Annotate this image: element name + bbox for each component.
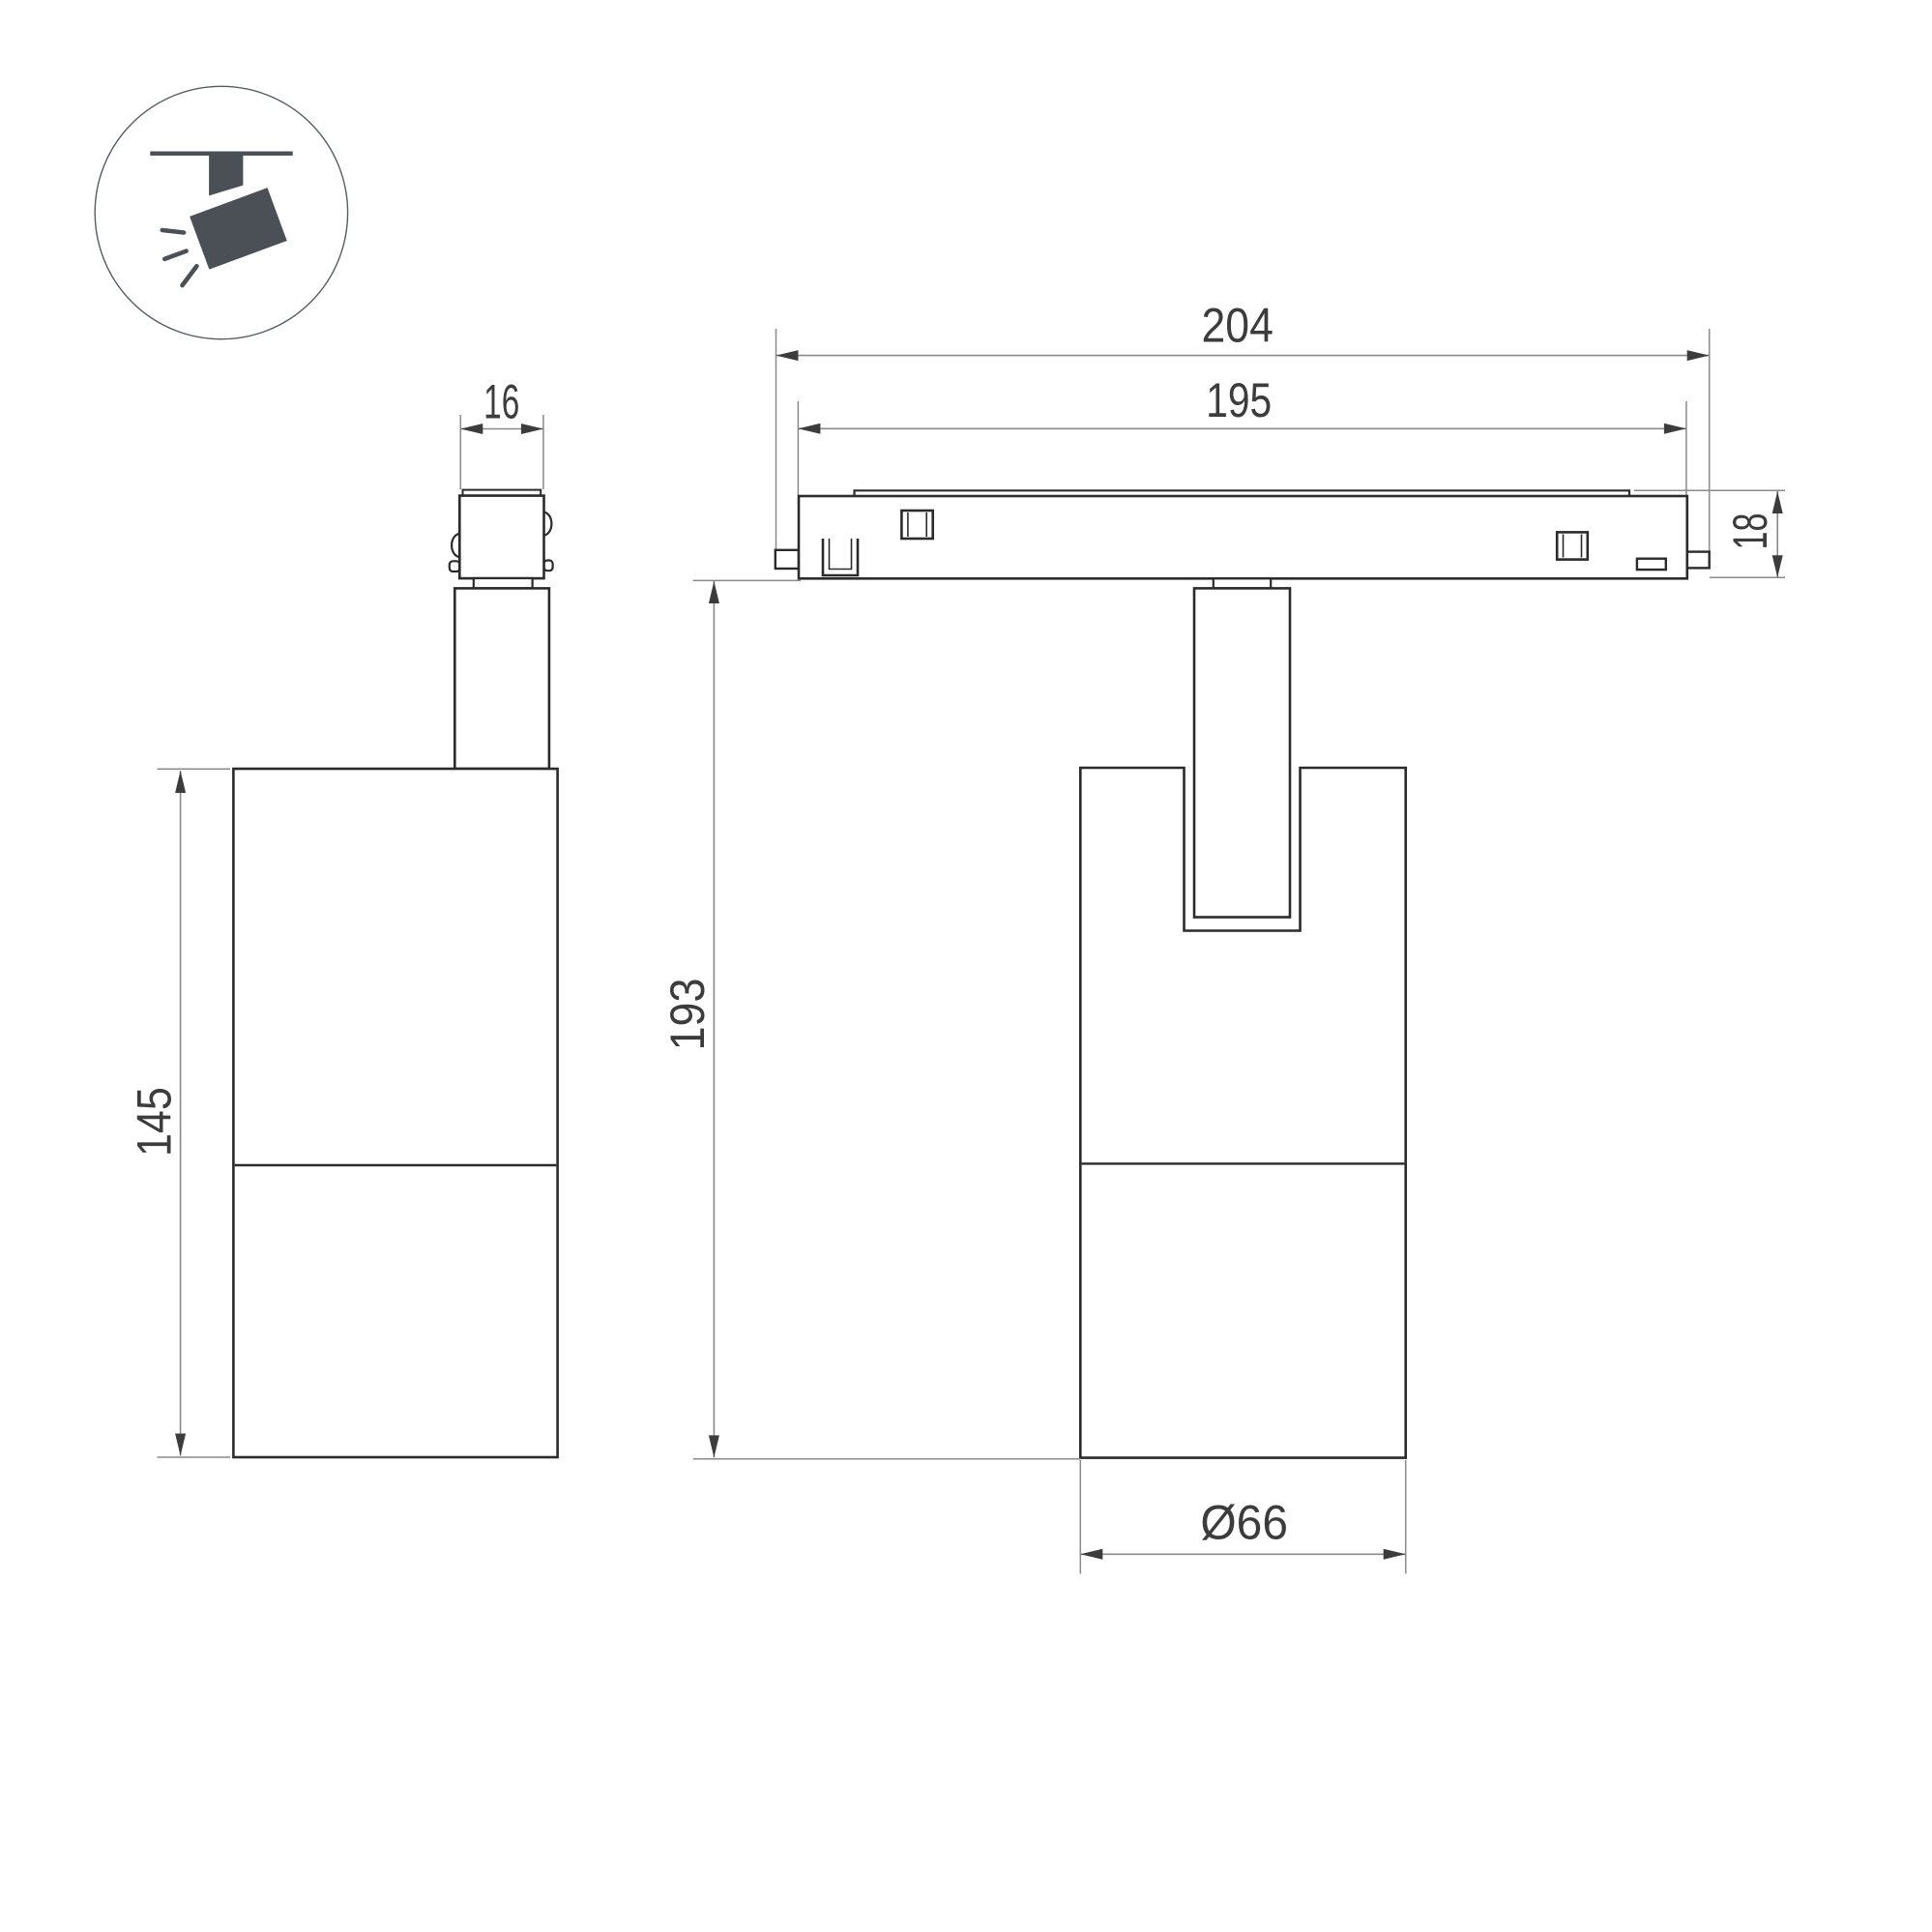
svg-text:145: 145 — [128, 1087, 182, 1156]
svg-text:195: 195 — [1206, 373, 1272, 427]
svg-text:Ø66: Ø66 — [1200, 1496, 1288, 1550]
svg-text:16: 16 — [483, 374, 519, 428]
svg-text:18: 18 — [1723, 513, 1777, 550]
svg-text:193: 193 — [660, 979, 715, 1051]
svg-text:204: 204 — [1202, 298, 1273, 352]
